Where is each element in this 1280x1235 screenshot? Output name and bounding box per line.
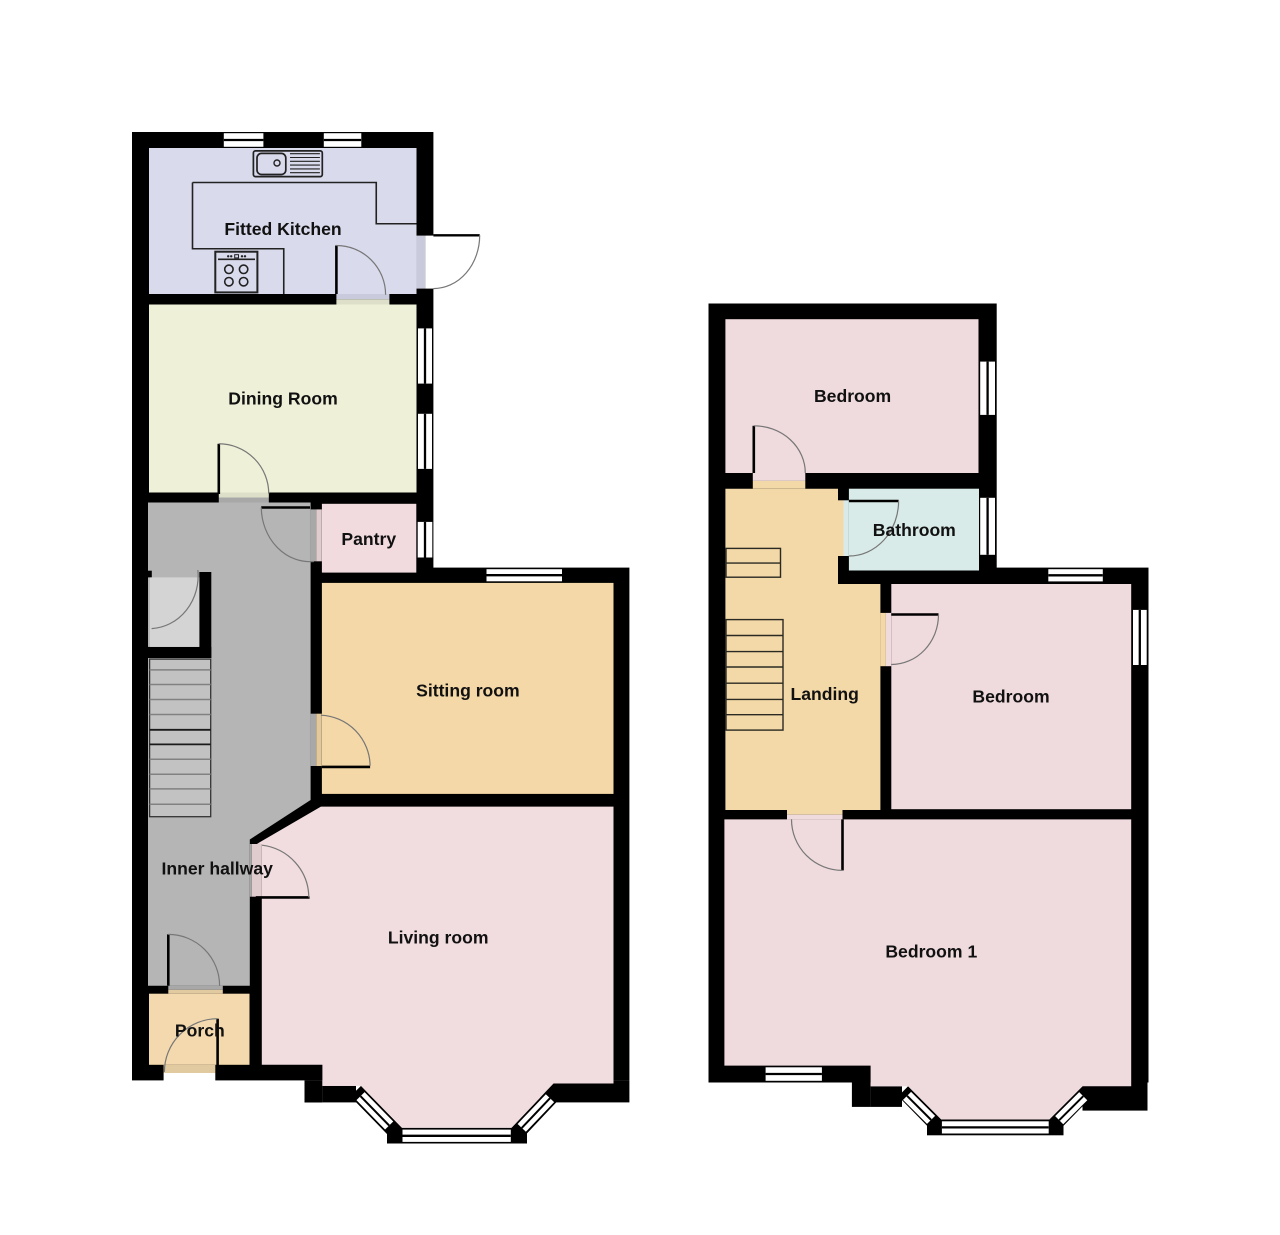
svg-text:Bedroom: Bedroom <box>814 386 891 406</box>
svg-text:Sitting room: Sitting room <box>416 681 520 701</box>
svg-text:Pantry: Pantry <box>341 529 396 549</box>
svg-text:Dining Room: Dining Room <box>228 389 337 409</box>
svg-text:Bedroom 1: Bedroom 1 <box>885 942 977 962</box>
svg-text:Landing: Landing <box>790 684 858 704</box>
svg-text:Living room: Living room <box>388 928 489 948</box>
svg-text:Bedroom: Bedroom <box>972 687 1049 707</box>
svg-text:Porch: Porch <box>175 1021 225 1041</box>
svg-text:Inner hallway: Inner hallway <box>161 859 273 879</box>
svg-text:Bathroom: Bathroom <box>873 520 956 540</box>
svg-text:Fitted Kitchen: Fitted Kitchen <box>224 219 341 239</box>
